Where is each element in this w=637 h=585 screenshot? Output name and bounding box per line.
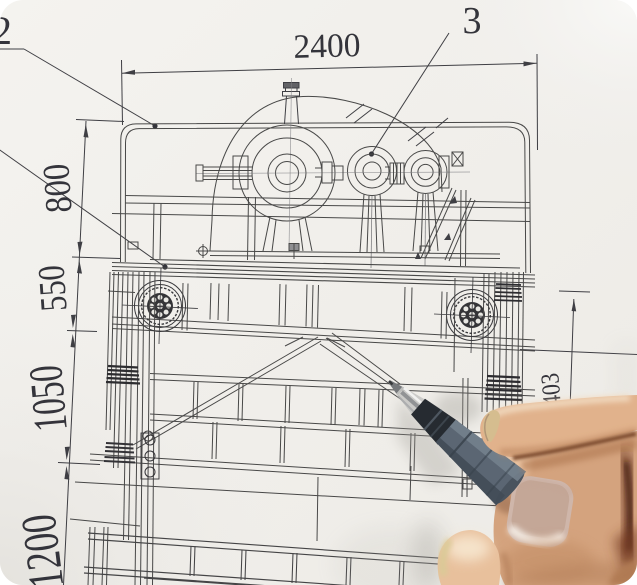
svg-text:1200: 1200 xyxy=(10,511,75,585)
svg-text:800: 800 xyxy=(35,162,80,214)
svg-text:2: 2 xyxy=(0,8,12,53)
svg-text:550: 550 xyxy=(30,264,75,313)
svg-text:3: 3 xyxy=(463,0,482,42)
svg-text:2400: 2400 xyxy=(293,27,361,66)
svg-text:1050: 1050 xyxy=(19,363,78,433)
